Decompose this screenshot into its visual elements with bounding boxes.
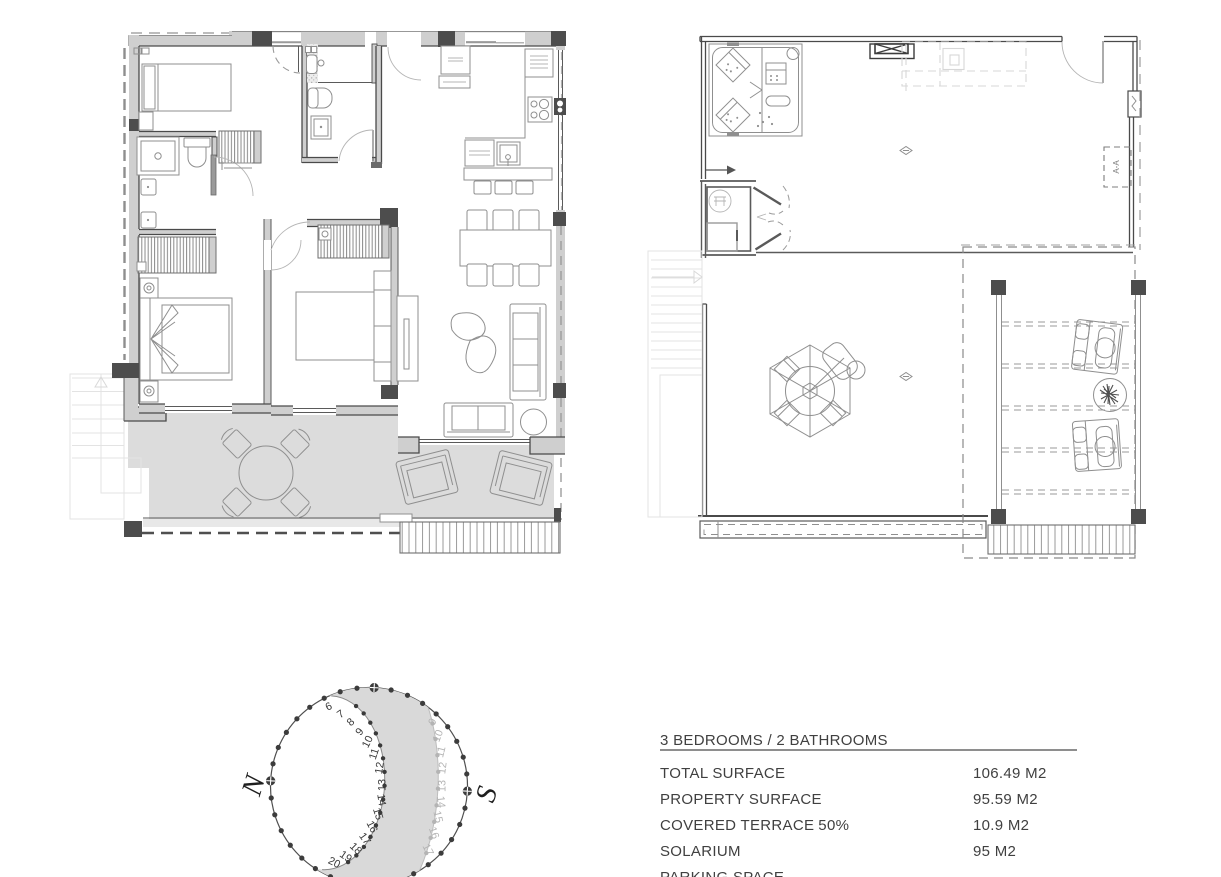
svg-text:3 BEDROOMS / 2 BATHROOMS: 3 BEDROOMS / 2 BATHROOMS [660,732,888,749]
svg-text:12: 12 [373,761,387,775]
svg-text:13: 13 [436,780,448,792]
svg-text:95.59 M2: 95.59 M2 [973,791,1038,808]
svg-text:A-A: A-A [1112,160,1121,174]
svg-text:TOTAL SURFACE: TOTAL SURFACE [660,765,785,782]
svg-text:95 M2: 95 M2 [973,843,1016,860]
svg-text:13: 13 [376,779,388,791]
svg-text:PARKING SPACE: PARKING SPACE [660,869,784,877]
svg-text:106.49 M2: 106.49 M2 [973,765,1047,782]
svg-text:12: 12 [436,761,449,774]
svg-text:PROPERTY SURFACE: PROPERTY SURFACE [660,791,822,808]
svg-text:SOLARIUM: SOLARIUM [660,843,741,860]
svg-text:14: 14 [434,795,447,808]
svg-text:COVERED TERRACE 50%: COVERED TERRACE 50% [660,817,849,834]
svg-text:10.9 M2: 10.9 M2 [973,817,1029,834]
svg-text:14: 14 [374,793,388,807]
